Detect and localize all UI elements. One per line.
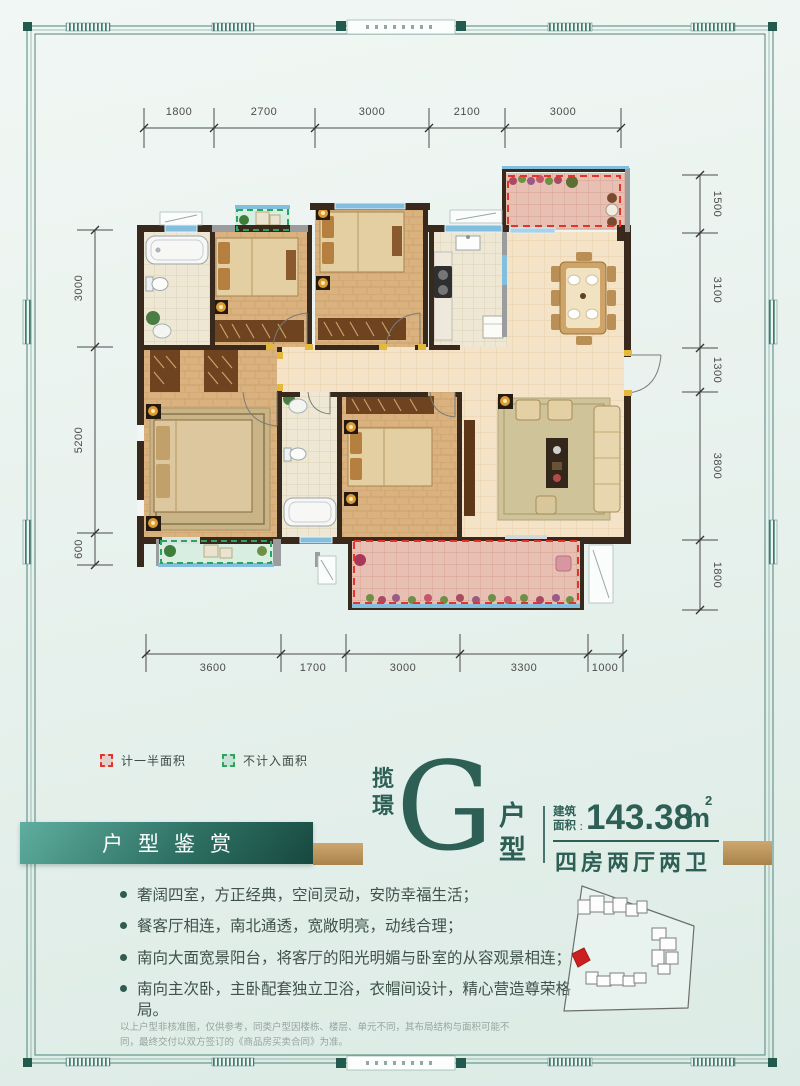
dimension-label: 2700 xyxy=(251,106,277,118)
legend-item-half-area: 计一半面积 xyxy=(100,752,186,769)
highlight-item: 南向主次卧，主卧配套独立卫浴，衣帽间设计，精心营造尊荣格局。 xyxy=(120,980,597,1021)
highlight-text: 餐客厅相连，南北通透，宽敞明亮，动线合理； xyxy=(137,918,463,935)
area-value: 143.38 xyxy=(586,798,693,838)
layout-description: 四房两厅两卫 xyxy=(555,845,711,877)
bedroom4-bed xyxy=(348,428,432,486)
dimension-label: 1700 xyxy=(300,662,326,674)
dimension-label: 3600 xyxy=(200,662,226,674)
bullet-icon xyxy=(120,985,127,992)
unit-type-word: 户型 xyxy=(497,799,528,867)
toilet xyxy=(146,277,168,291)
dimension-label: 3000 xyxy=(550,106,576,118)
excluded-area-swatch-icon xyxy=(222,754,235,767)
gold-accent-bar xyxy=(313,843,363,865)
site-keymap xyxy=(552,876,712,1021)
wash-basin xyxy=(153,324,171,338)
dimension-label: 1800 xyxy=(711,562,723,588)
highlight-text: 奢阔四室，方正经典，空间灵动，安防幸福生活； xyxy=(137,887,478,904)
highlight-text: 南向大面宽景阳台，将客厅的阳光明媚与卧室的从容观景相连； xyxy=(137,950,571,967)
area-unit-superscript: 2 xyxy=(705,793,712,808)
area-label: 建筑面积 xyxy=(553,806,580,833)
dimension-label: 3300 xyxy=(511,662,537,674)
section-banner: 户型鉴赏 xyxy=(20,822,313,864)
bullet-icon xyxy=(120,922,127,929)
project-name: 揽璟 xyxy=(370,765,396,819)
plant xyxy=(146,311,160,325)
half-area-swatch-icon xyxy=(100,754,113,767)
dimension-label: 600 xyxy=(73,539,85,559)
bedroom3-bed xyxy=(320,212,404,272)
bedroom2-wardrobe xyxy=(214,320,304,342)
title-rule xyxy=(553,840,719,842)
bedroom2-bed xyxy=(216,238,298,296)
flyer-page: 1800 2700 3000 2100 3000 3000 5200 600 1… xyxy=(0,0,800,1086)
dimension-label: 1000 xyxy=(592,662,618,674)
dimension-label: 1800 xyxy=(166,106,192,118)
bedroom3-wardrobe xyxy=(318,318,406,340)
gold-accent-bar xyxy=(723,841,772,865)
dimension-label: 5200 xyxy=(73,427,85,453)
bullet-icon xyxy=(120,891,127,898)
dimension-label: 3000 xyxy=(73,275,85,301)
area-legend: 计一半面积 不计入面积 xyxy=(100,752,308,769)
unit-type-letter: G xyxy=(396,748,493,866)
bathtub xyxy=(146,236,208,264)
disclaimer-text: 以上户型非核准图，仅供参考，同类户型因楼栋、楼层、单元不同，其布局结构与面积可能… xyxy=(120,1021,525,1050)
legend-item-excluded-area: 不计入面积 xyxy=(222,752,308,769)
dimension-label: 3000 xyxy=(359,106,385,118)
dimension-label: 2100 xyxy=(454,106,480,118)
dimension-label: 3000 xyxy=(390,662,416,674)
bullet-icon xyxy=(120,954,127,961)
title-divider xyxy=(543,806,545,863)
master-bed xyxy=(150,408,270,530)
section-banner-label: 户型鉴赏 xyxy=(87,828,246,858)
legend-label: 计一半面积 xyxy=(121,752,186,769)
legend-label: 不计入面积 xyxy=(243,752,308,769)
dimension-label: 1500 xyxy=(711,191,723,217)
bedroom4-wardrobe xyxy=(346,396,434,414)
dimension-label: 3800 xyxy=(711,453,723,479)
dimension-label: 1300 xyxy=(711,357,723,383)
dimension-label: 3100 xyxy=(711,277,723,303)
highlight-text: 南向主次卧，主卧配套独立卫浴，衣帽间设计，精心营造尊荣格局。 xyxy=(137,981,571,1018)
